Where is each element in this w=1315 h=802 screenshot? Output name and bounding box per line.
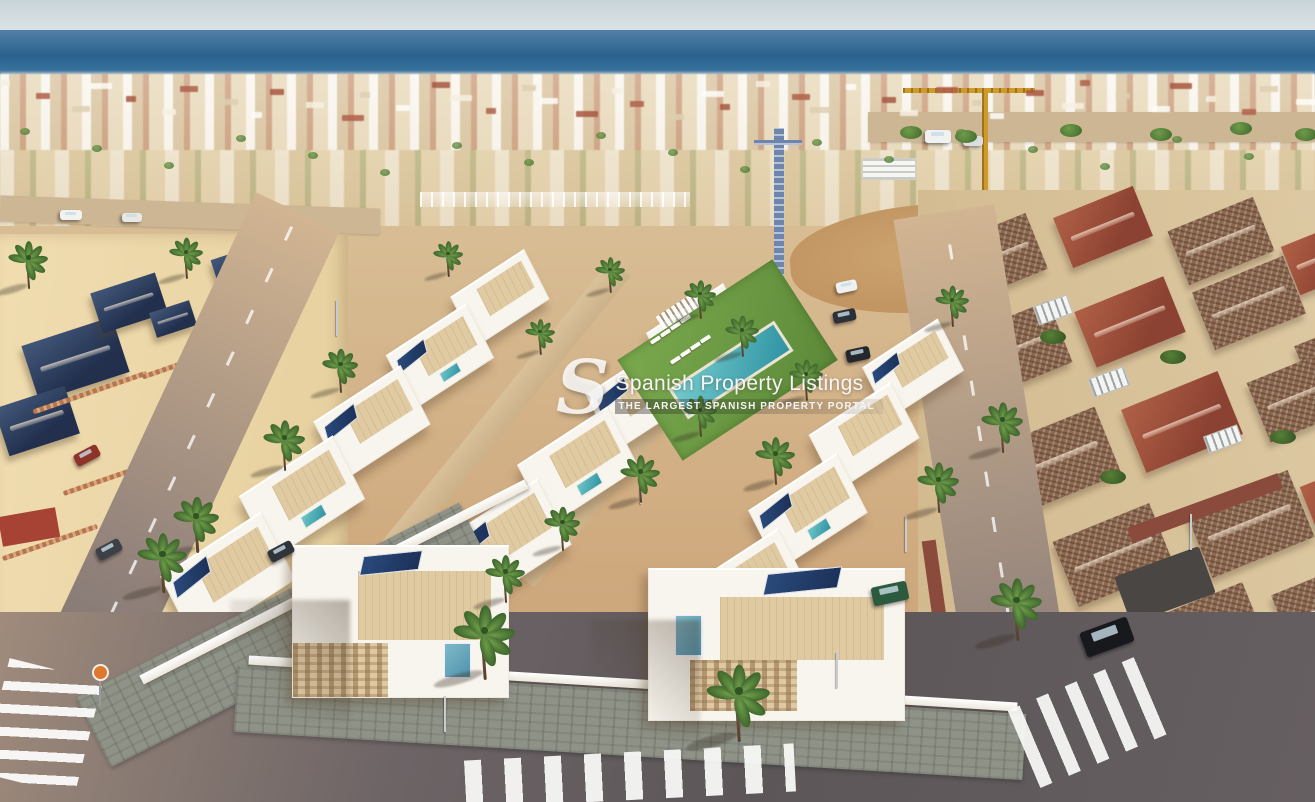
distant-building bbox=[180, 86, 198, 92]
car bbox=[122, 213, 142, 222]
palm-crown bbox=[446, 252, 450, 255]
palm-tree bbox=[10, 245, 45, 296]
palm-tree bbox=[546, 509, 579, 557]
roof-terrace bbox=[720, 597, 883, 660]
distant-building bbox=[0, 80, 10, 86]
distant-tree bbox=[1028, 146, 1038, 153]
palm-tree bbox=[597, 260, 623, 298]
blue-crane-arm bbox=[754, 140, 802, 145]
distant-building bbox=[990, 113, 1004, 119]
palm-tree bbox=[727, 318, 758, 363]
palm-tree bbox=[435, 244, 461, 282]
distant-building bbox=[306, 102, 324, 108]
car bbox=[925, 130, 951, 143]
roof-ridge bbox=[1070, 212, 1135, 242]
palm-tree bbox=[457, 610, 512, 690]
distant-tree bbox=[1100, 163, 1110, 170]
palm-tree bbox=[171, 240, 202, 285]
distant-building bbox=[270, 89, 284, 95]
palm-crown bbox=[503, 569, 508, 574]
distant-building bbox=[72, 106, 90, 112]
distant-building bbox=[882, 97, 896, 103]
car-windshield bbox=[837, 311, 850, 317]
palm-tree bbox=[265, 424, 302, 478]
car-windshield bbox=[100, 543, 114, 553]
distant-building bbox=[342, 115, 364, 121]
roof-ridge bbox=[104, 293, 154, 313]
watermark-text: Spanish Property Listings THE LARGEST SP… bbox=[615, 358, 882, 414]
sky bbox=[0, 0, 1315, 34]
distant-tree bbox=[20, 128, 30, 135]
distant-tree bbox=[308, 152, 318, 159]
watermark-logo: S bbox=[556, 358, 609, 419]
distant-building bbox=[1152, 106, 1170, 112]
roof-ridge bbox=[1186, 225, 1256, 257]
car-windshield bbox=[126, 214, 136, 217]
distant-building bbox=[846, 84, 856, 90]
roof-ridge bbox=[1267, 376, 1315, 411]
distant-tree bbox=[884, 156, 894, 163]
palm-crown bbox=[950, 298, 954, 302]
distant-building bbox=[1260, 86, 1278, 92]
roof-ridge bbox=[157, 313, 188, 325]
yellow-crane-tower bbox=[982, 88, 988, 200]
distant-tree bbox=[92, 145, 102, 152]
palm-crown bbox=[26, 255, 31, 260]
distant-building bbox=[216, 99, 238, 105]
distant-tree bbox=[380, 169, 390, 176]
building-shadow bbox=[230, 600, 350, 720]
garden-hedge bbox=[1100, 470, 1126, 484]
distant-building bbox=[360, 92, 370, 98]
palm-tree bbox=[993, 583, 1039, 650]
palm-crown bbox=[740, 328, 744, 332]
watermark-title: Spanish Property Listings bbox=[615, 372, 882, 396]
car-windshield bbox=[65, 212, 76, 215]
distant-building bbox=[522, 85, 536, 91]
car-windshield bbox=[272, 545, 286, 555]
palm-tree bbox=[709, 670, 766, 753]
street-lamp bbox=[444, 696, 446, 732]
roadside-tree bbox=[1060, 124, 1082, 137]
distant-building bbox=[540, 98, 558, 104]
roof-ridge bbox=[1296, 245, 1315, 270]
palm-tree bbox=[622, 459, 657, 510]
distant-tree bbox=[452, 142, 462, 149]
distant-building bbox=[702, 91, 724, 97]
distant-tree bbox=[164, 162, 174, 169]
distant-tree bbox=[236, 135, 246, 142]
street-lamp bbox=[836, 652, 838, 688]
roof-ridge bbox=[1093, 305, 1166, 338]
distant-building bbox=[666, 114, 684, 120]
palm-crown bbox=[638, 469, 643, 474]
distant-building bbox=[450, 95, 472, 101]
garden-hedge bbox=[1270, 430, 1296, 444]
distant-tree bbox=[524, 159, 534, 166]
watermark: S Spanish Property Listings THE LARGEST … bbox=[556, 358, 883, 419]
distant-building bbox=[486, 108, 496, 114]
distant-building bbox=[972, 100, 982, 106]
building-shadow bbox=[590, 620, 700, 740]
distant-tree bbox=[1172, 136, 1182, 143]
distant-building bbox=[1026, 90, 1044, 96]
palm-tree bbox=[983, 406, 1020, 460]
distant-building bbox=[792, 94, 810, 100]
distant-tree bbox=[668, 149, 678, 156]
distant-building bbox=[36, 93, 50, 99]
distant-building bbox=[1206, 96, 1216, 102]
palm-crown bbox=[773, 451, 778, 456]
car-windshield bbox=[1091, 625, 1118, 642]
roof-ridge bbox=[1211, 285, 1286, 319]
distant-building bbox=[576, 111, 598, 117]
garden-hedge bbox=[1040, 330, 1066, 344]
palm-crown bbox=[159, 551, 165, 557]
distant-building bbox=[126, 96, 136, 102]
roadside-tree bbox=[1295, 128, 1315, 141]
palm-crown bbox=[338, 362, 343, 366]
yellow-crane-jib bbox=[903, 88, 1035, 93]
solar-panel bbox=[763, 566, 843, 595]
aerial-development-render: S Spanish Property Listings THE LARGEST … bbox=[0, 0, 1315, 802]
roadside-tree bbox=[900, 126, 922, 139]
distant-building bbox=[900, 110, 918, 116]
distant-building bbox=[756, 81, 770, 87]
roadside-tree bbox=[1230, 122, 1252, 135]
distant-building bbox=[90, 83, 112, 89]
distant-building bbox=[810, 107, 832, 113]
palm-tree bbox=[324, 351, 357, 399]
roadside-tree bbox=[955, 130, 977, 143]
car bbox=[60, 210, 82, 220]
watermark-tagline: THE LARGEST SPANISH PROPERTY PORTAL bbox=[615, 399, 882, 414]
car-windshield bbox=[931, 132, 945, 136]
street-lamp bbox=[905, 516, 907, 552]
distant-building bbox=[936, 87, 958, 93]
palm-tree bbox=[140, 538, 184, 602]
palm-tree bbox=[919, 466, 956, 520]
street-lamp bbox=[1190, 514, 1192, 550]
traffic-sign bbox=[92, 664, 109, 681]
distant-building bbox=[432, 82, 450, 88]
distant-building bbox=[1062, 103, 1084, 109]
palm-crown bbox=[735, 687, 743, 694]
distant-building bbox=[396, 105, 410, 111]
distant-tree bbox=[740, 166, 750, 173]
distant-building bbox=[1242, 109, 1256, 115]
steel-gantry bbox=[420, 192, 690, 207]
palm-tree bbox=[937, 288, 968, 333]
distant-building bbox=[630, 101, 644, 107]
garden-hedge bbox=[1160, 350, 1186, 364]
palm-tree bbox=[487, 559, 522, 610]
distant-building bbox=[1116, 93, 1130, 99]
palm-tree bbox=[527, 322, 553, 360]
car-windshield bbox=[879, 585, 899, 595]
distant-tree bbox=[596, 132, 606, 139]
car-windshield bbox=[78, 449, 92, 459]
palm-tree bbox=[686, 283, 715, 325]
distant-building bbox=[252, 112, 262, 118]
palm-crown bbox=[560, 520, 565, 524]
palm-tree bbox=[757, 441, 792, 492]
distant-tree bbox=[1244, 153, 1254, 160]
distant-tree bbox=[812, 139, 822, 146]
palm-crown bbox=[608, 268, 612, 271]
distant-building bbox=[1296, 99, 1315, 105]
sea bbox=[0, 30, 1315, 76]
palm-crown bbox=[184, 250, 188, 254]
distant-building bbox=[1170, 83, 1192, 89]
distant-building bbox=[1080, 80, 1090, 86]
distant-building bbox=[612, 88, 622, 94]
palm-crown bbox=[538, 330, 542, 333]
distant-building bbox=[720, 104, 730, 110]
roof-ridge bbox=[40, 345, 110, 372]
street-lamp bbox=[336, 300, 338, 336]
car-windshield bbox=[850, 349, 863, 356]
car-windshield bbox=[840, 282, 851, 288]
roadside-tree bbox=[1150, 128, 1172, 141]
distant-building bbox=[162, 109, 176, 115]
